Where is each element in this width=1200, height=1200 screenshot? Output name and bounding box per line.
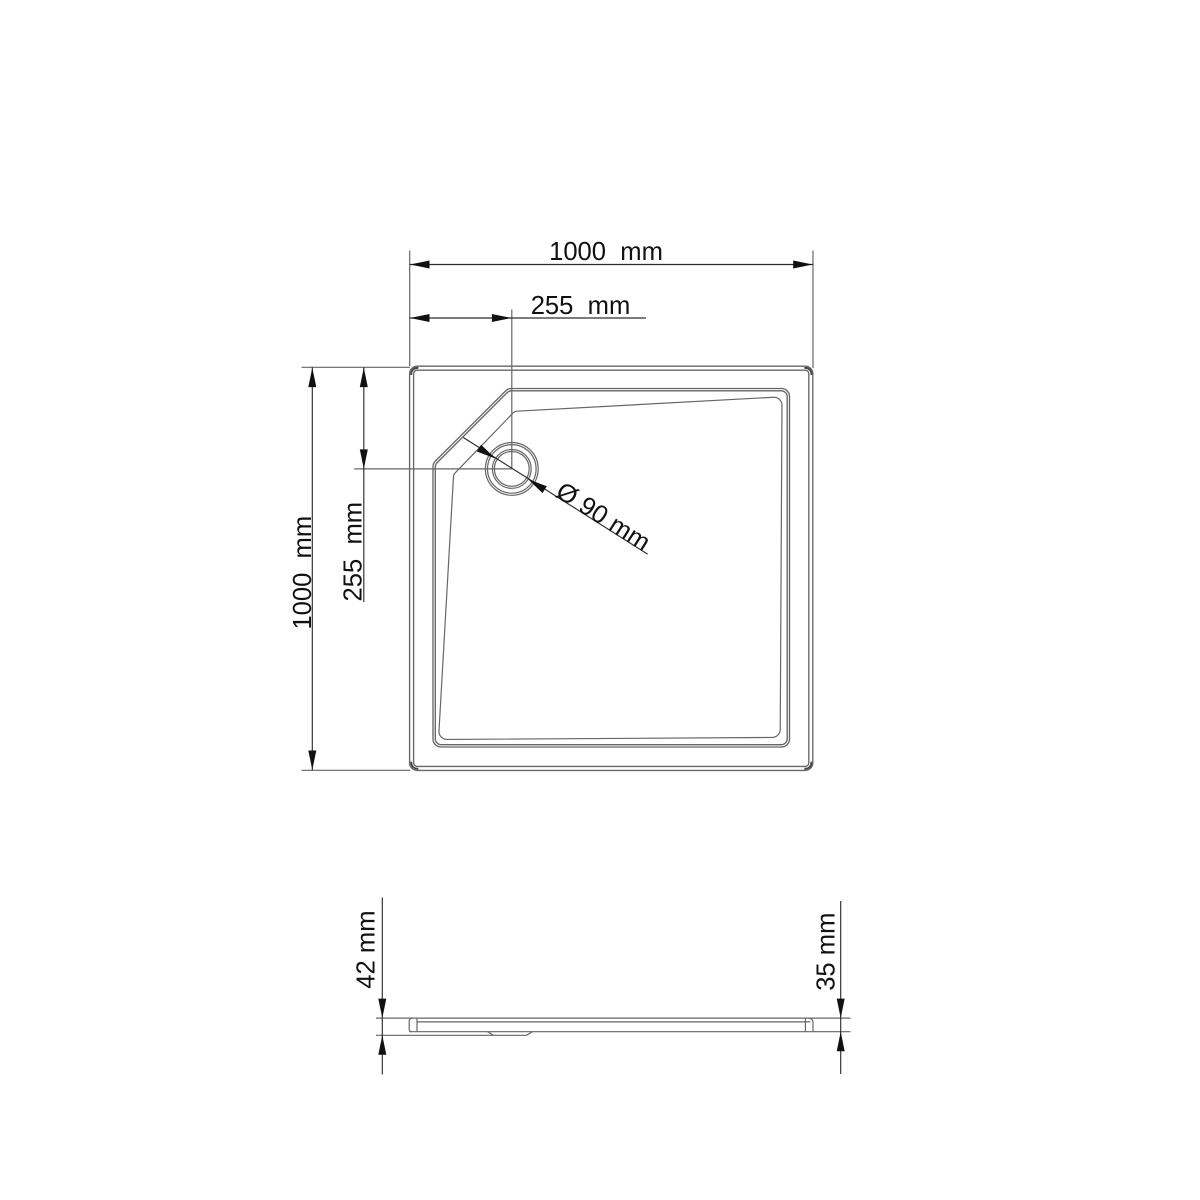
svg-text:35 mm: 35 mm (813, 913, 841, 991)
svg-text:255 mm: 255 mm (340, 502, 368, 602)
svg-text:1000 mm: 1000 mm (549, 238, 663, 266)
svg-text:1000 mm: 1000 mm (289, 516, 317, 630)
svg-text:255 mm: 255 mm (531, 292, 631, 320)
svg-text:42 mm: 42 mm (353, 910, 381, 988)
